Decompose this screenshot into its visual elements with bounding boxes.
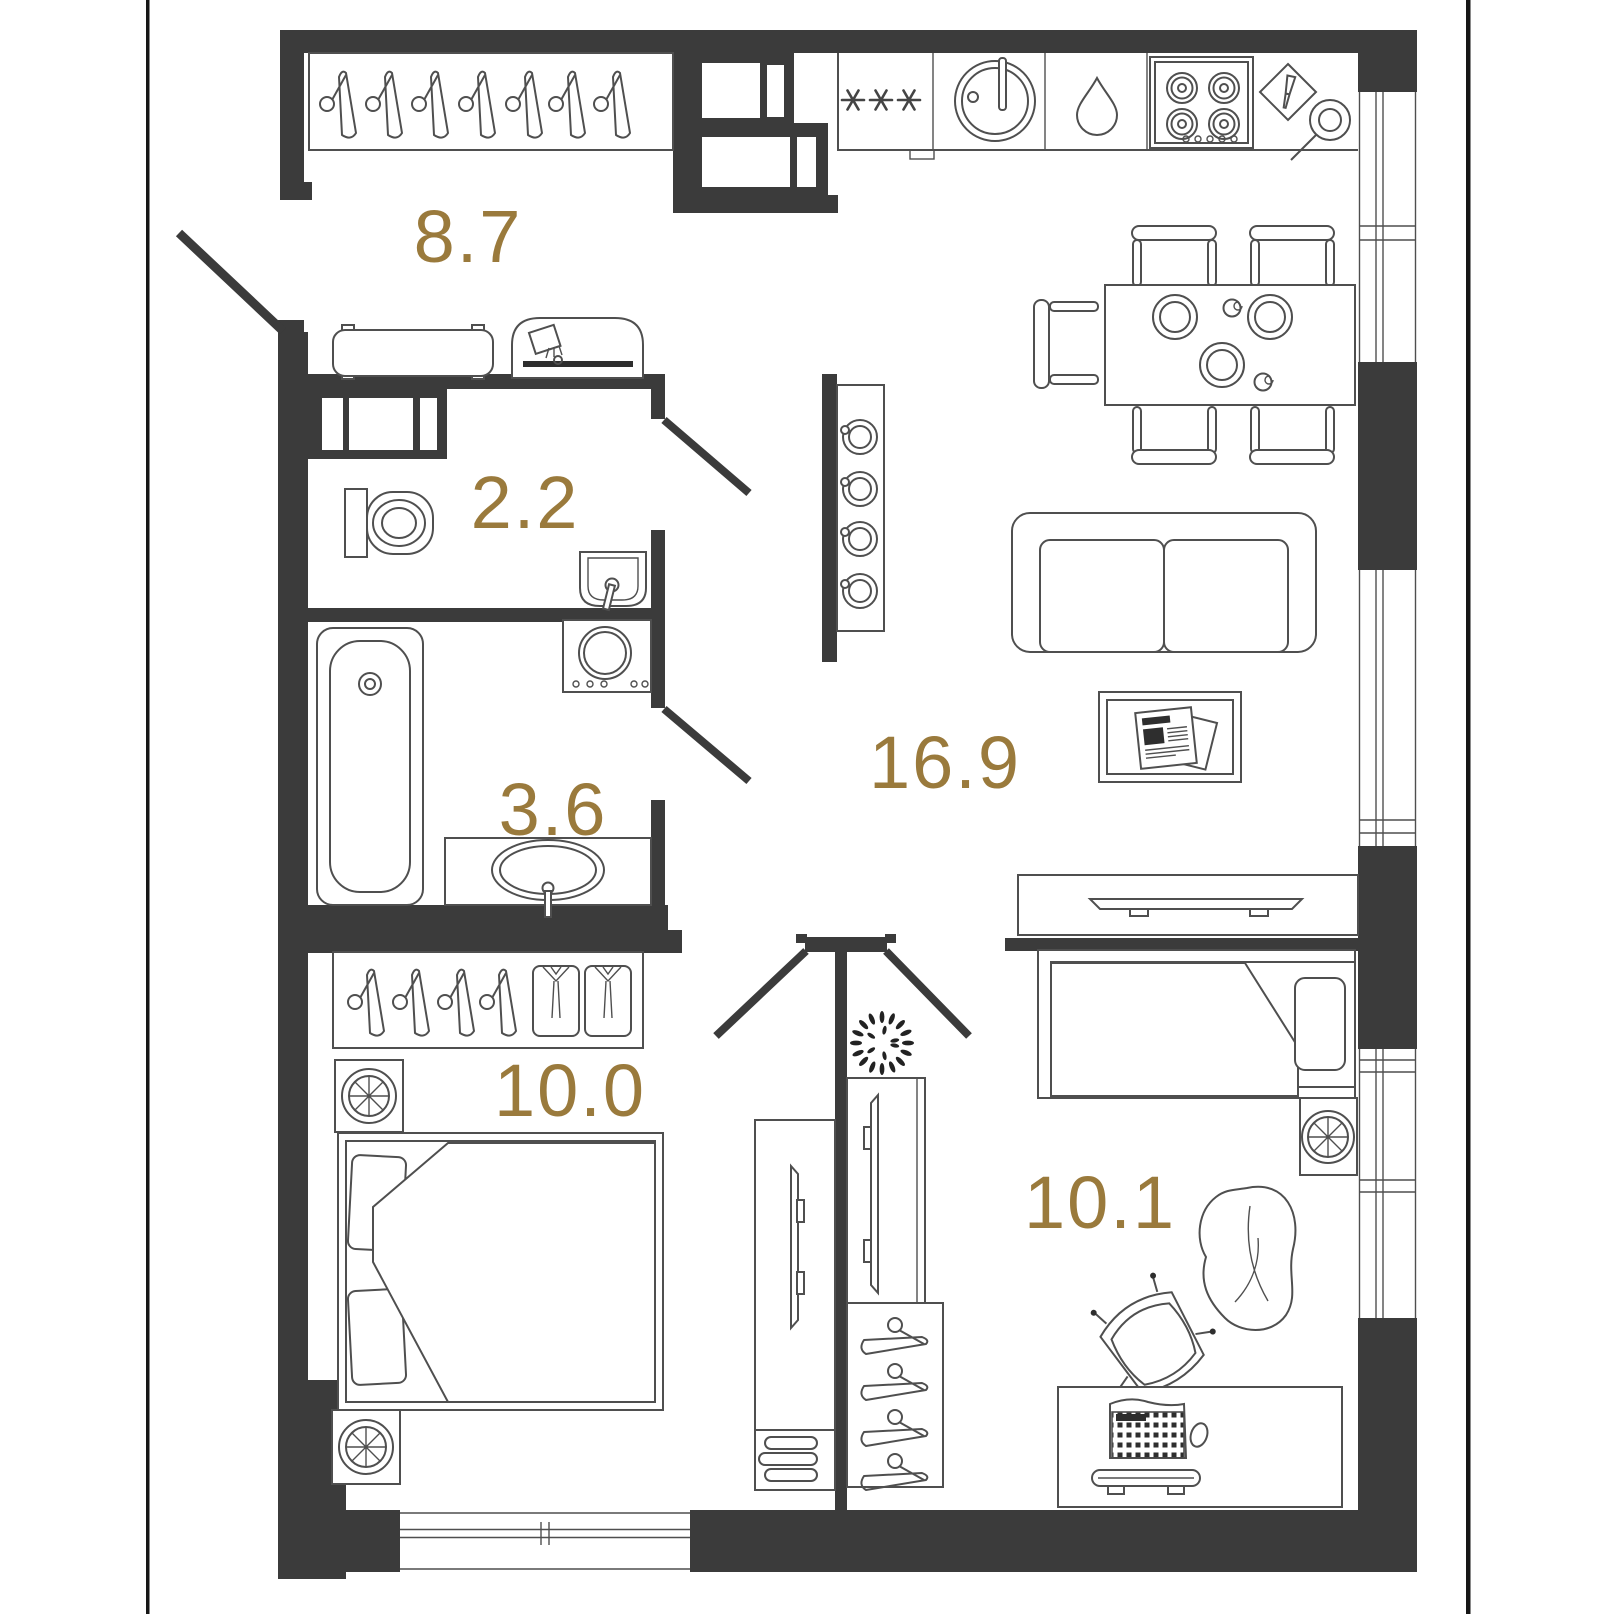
chair-icon <box>1250 407 1334 464</box>
bedroom-wardrobe <box>333 952 643 1048</box>
single-bed <box>1038 950 1355 1098</box>
chair-icon <box>1034 300 1098 388</box>
kitchen-sink-icon <box>955 58 1035 141</box>
washing-machine-icon <box>563 620 651 692</box>
plant-top-icon <box>850 1011 914 1075</box>
fridge-icon <box>842 91 920 110</box>
sofa-icon <box>1012 513 1316 652</box>
bedroom-tv-cabinet <box>755 1120 835 1490</box>
wc-basin-icon <box>580 552 646 610</box>
floor-plan: 8.7 2.2 <box>0 0 1614 1614</box>
living-area-label: 16.9 <box>869 721 1021 804</box>
bedroom-area-label: 10.0 <box>494 1049 646 1132</box>
dining-set <box>1034 226 1355 464</box>
plant-icon <box>349 1076 389 1116</box>
room-living-kitchen: 16.9 <box>837 53 1358 935</box>
left-boundary-line <box>146 0 150 1614</box>
dishwasher-drop-icon <box>1077 78 1117 135</box>
hall-wardrobe <box>309 53 673 150</box>
window-kitchen <box>1359 92 1416 362</box>
room-bedroom: 10.0 <box>332 952 835 1490</box>
room-bathroom: 3.6 <box>317 620 651 917</box>
kids-tv-cabinet <box>847 1078 925 1303</box>
right-boundary-line <box>1466 0 1471 1614</box>
bedroom-door-swing <box>716 951 806 1036</box>
stove-icon <box>1150 57 1253 148</box>
desk <box>1058 1387 1342 1507</box>
room-kids: 10.1 <box>847 950 1357 1507</box>
window-bedroom <box>400 1513 690 1569</box>
hall-bench <box>333 325 493 379</box>
plant-icon <box>1308 1117 1348 1157</box>
entrance-door-swing <box>179 233 283 331</box>
bathtub-icon <box>317 628 423 905</box>
wc-area-label: 2.2 <box>471 461 580 544</box>
floor-plan-page: 8.7 2.2 <box>0 0 1614 1614</box>
wc-door-swing <box>664 420 749 493</box>
window-kids-room <box>1359 1049 1416 1318</box>
chair-icon <box>1132 226 1216 286</box>
cutting-board-icon <box>1260 64 1316 120</box>
chair-icon <box>1132 407 1216 464</box>
double-bed <box>338 1133 663 1410</box>
chair-icon <box>1250 226 1334 286</box>
plant-icon <box>346 1427 386 1467</box>
bathroom-door-swing <box>664 709 749 781</box>
room-wc: 2.2 <box>345 461 646 610</box>
living-sideboard <box>1018 875 1358 935</box>
kids-area-label: 10.1 <box>1024 1161 1176 1244</box>
keyboard-icon <box>1110 1399 1186 1458</box>
kitchen-counter <box>838 53 1358 160</box>
vent-shaft-kitchen <box>673 30 838 213</box>
vent-shaft-wc <box>307 389 447 459</box>
coffee-table-icon <box>1099 692 1241 782</box>
bathroom-area-label: 3.6 <box>499 768 608 851</box>
nightstand-plant <box>332 1410 400 1484</box>
hall-console-mirror <box>512 318 643 378</box>
toilet-icon <box>345 489 433 557</box>
nightstand-plant <box>335 1060 403 1132</box>
window-living <box>1359 570 1416 846</box>
nightstand-plant <box>1300 1098 1357 1175</box>
beanbag-icon <box>1200 1187 1296 1330</box>
hallway-area-label: 8.7 <box>414 195 523 278</box>
room-hallway: 8.7 <box>309 53 673 379</box>
wall-shelf-unit <box>837 385 884 631</box>
kids-wardrobe <box>847 1303 943 1490</box>
